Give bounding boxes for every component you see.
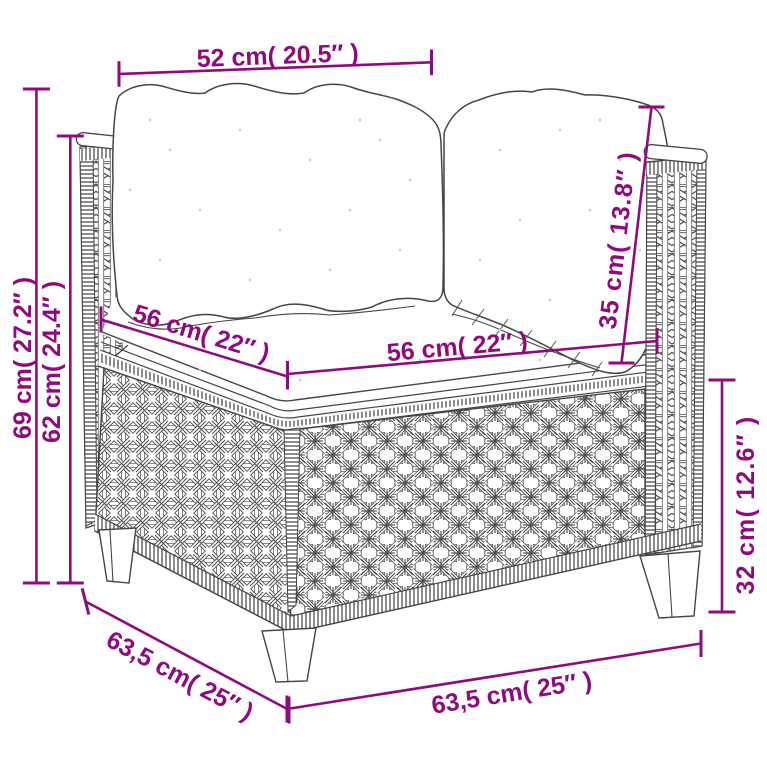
- svg-text:52 cm( 20.5″ ): 52 cm( 20.5″ ): [196, 39, 359, 73]
- svg-text:62 cm( 24.4″ ): 62 cm( 24.4″ ): [38, 281, 66, 443]
- svg-text:32 cm( 12.6″ ): 32 cm( 12.6″ ): [732, 416, 760, 595]
- svg-text:69 cm( 27.2″ ): 69 cm( 27.2″ ): [9, 277, 37, 439]
